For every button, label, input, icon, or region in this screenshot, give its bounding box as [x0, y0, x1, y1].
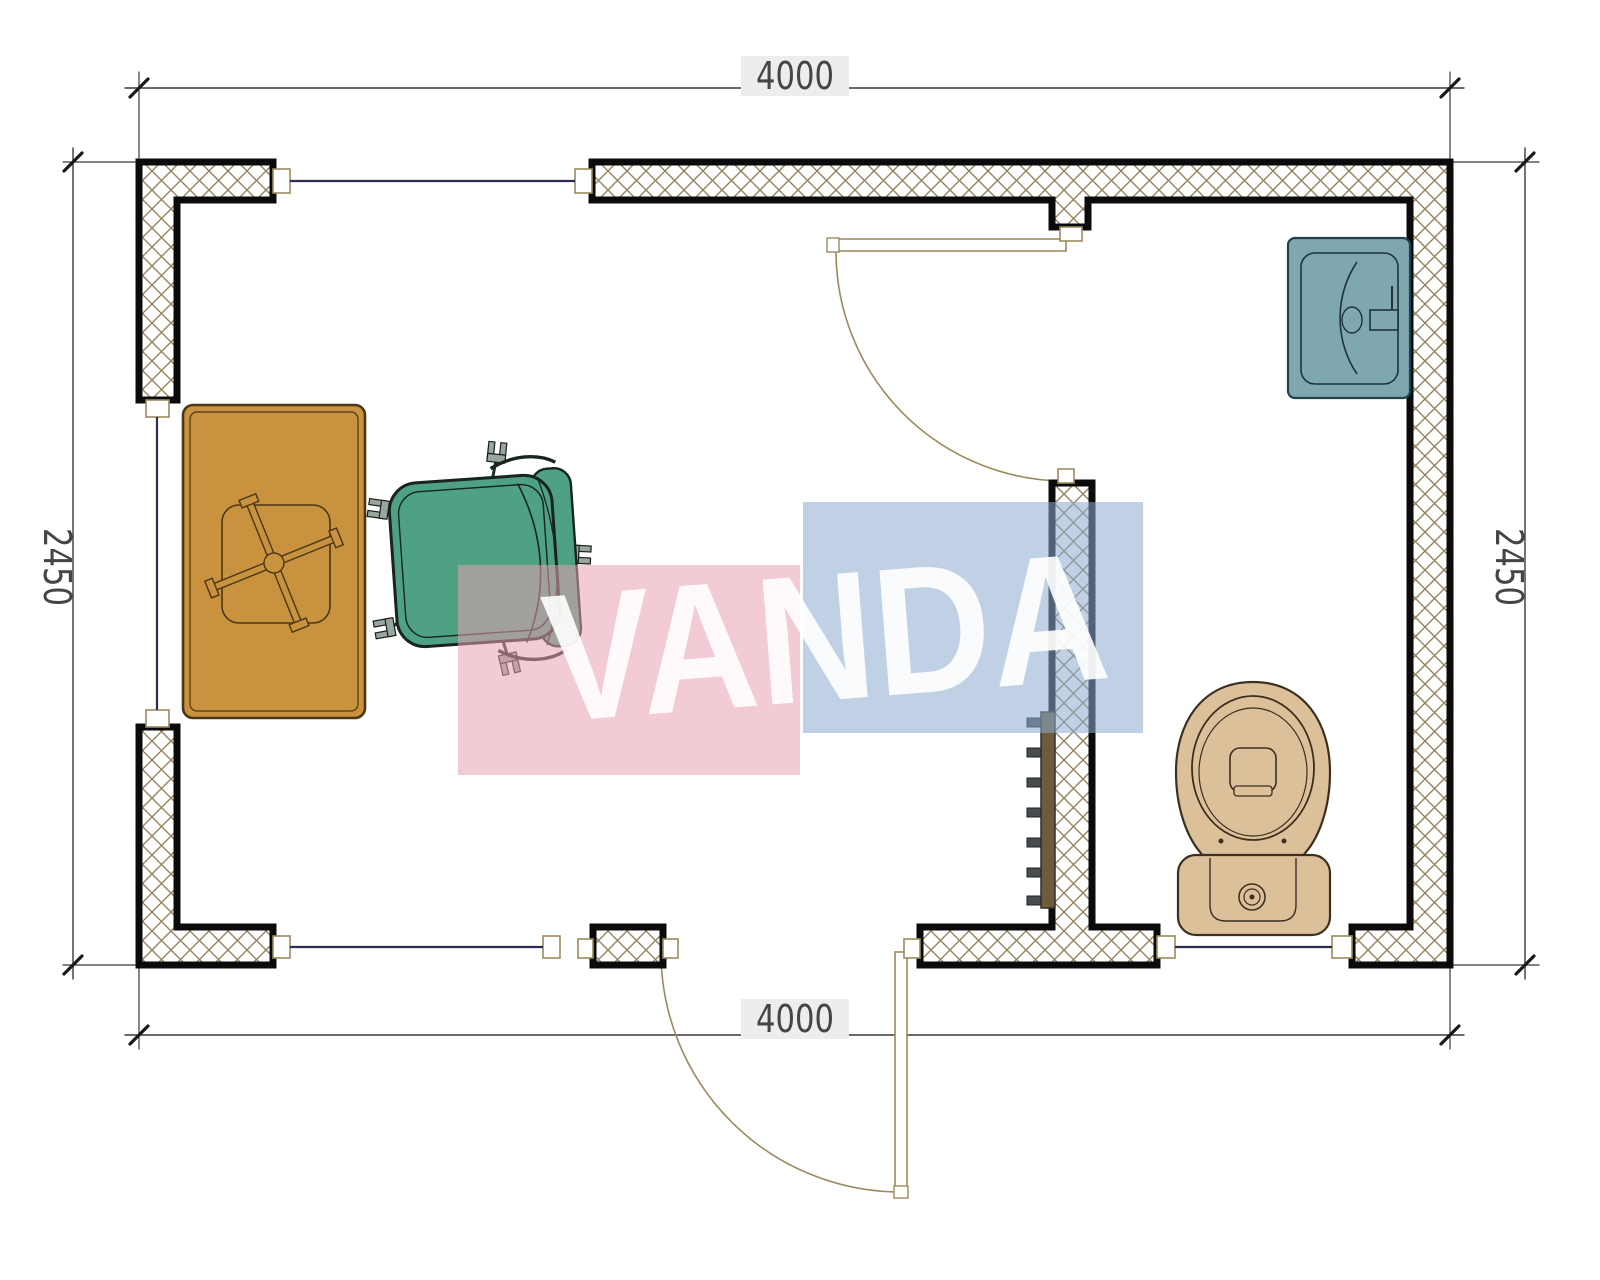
floor-plan-drawing: 4000 4000 2450 2450: [0, 0, 1600, 1280]
desk: [182, 405, 367, 718]
wall-top-left-corner: [139, 162, 273, 400]
wall-entrance-pier: [593, 927, 663, 965]
window-jamb: [273, 936, 290, 958]
radiator-tabs: [1027, 718, 1042, 905]
sink: [1288, 238, 1410, 398]
floor-plan-canvas: 4000 4000 2450 2450: [0, 0, 1600, 1280]
radiator-panel: [1041, 712, 1055, 908]
bathroom-door: [827, 238, 1066, 481]
sink-faucet: [1370, 310, 1398, 330]
bathroom-door-leaf: [836, 239, 1066, 251]
toilet-seat-bolt: [1219, 839, 1224, 844]
window-jamb: [1157, 936, 1175, 958]
window-jamb: [1332, 936, 1352, 958]
window-jamb: [575, 169, 592, 193]
toilet-knob-center: [1250, 895, 1255, 900]
dim-bottom-label: 4000: [756, 997, 834, 1041]
toilet-tank: [1178, 855, 1330, 935]
wall-bottom-left-corner: [139, 727, 273, 965]
dim-left-label: 2450: [35, 528, 79, 606]
door-jamb: [663, 939, 678, 958]
window-jamb: [146, 710, 169, 727]
door-jamb: [904, 939, 920, 958]
door-jamb: [578, 939, 593, 958]
entrance-door: [661, 952, 908, 1198]
door-jamb: [1060, 227, 1082, 241]
dim-right-label: 2450: [1487, 528, 1531, 606]
dim-top-label: 4000: [756, 54, 834, 98]
window-jamb: [543, 936, 560, 958]
window-jamb: [273, 169, 290, 193]
window-jamb: [146, 400, 169, 417]
bathroom-door-leaf-end: [827, 238, 839, 252]
door-jamb: [1058, 469, 1074, 483]
toilet: [1176, 682, 1330, 935]
toilet-seat-bolt: [1282, 839, 1287, 844]
entrance-door-leaf: [895, 952, 907, 1192]
towel-radiator: [1027, 712, 1055, 908]
toilet-flush-button: [1234, 786, 1272, 796]
entrance-door-swing-arc: [661, 952, 901, 1192]
bathroom-door-swing-arc: [836, 251, 1066, 481]
entrance-door-leaf-end: [894, 1186, 908, 1198]
